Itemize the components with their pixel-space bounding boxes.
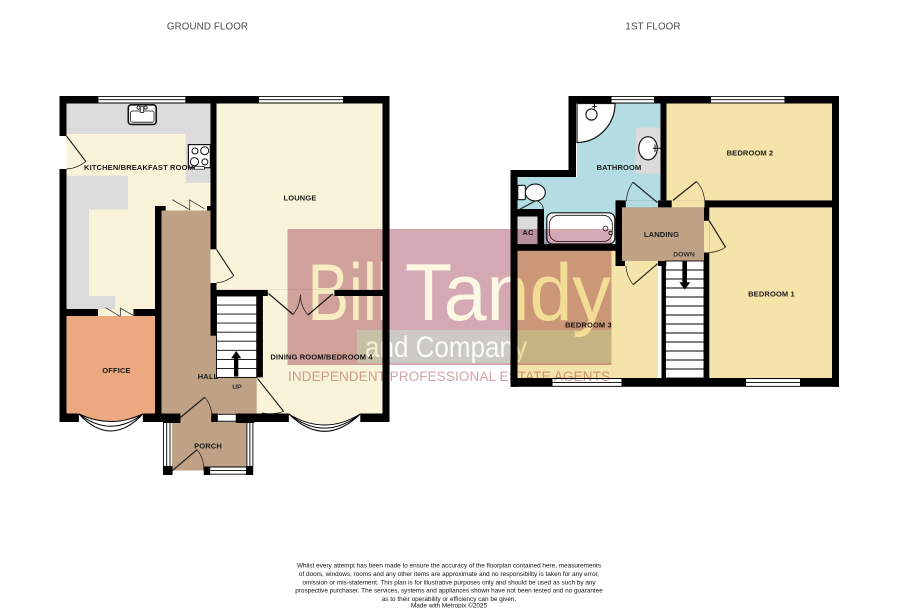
svg-text:BEDROOM 2: BEDROOM 2: [727, 149, 774, 158]
svg-text:prospective purchaser. The ser: prospective purchaser. The services, sys…: [295, 588, 603, 595]
svg-text:BATHROOM: BATHROOM: [597, 163, 642, 172]
svg-text:LOUNGE: LOUNGE: [284, 193, 317, 202]
svg-text:Made with Metropix ©2025: Made with Metropix ©2025: [411, 601, 488, 608]
svg-text:omission or mis-statement. Thi: omission or mis-statement. This plan is …: [302, 579, 596, 586]
svg-text:UP: UP: [232, 384, 242, 391]
svg-text:of doors, windows, rooms and a: of doors, windows, rooms and any other i…: [299, 571, 599, 578]
svg-text:1ST FLOOR: 1ST FLOOR: [625, 22, 680, 33]
svg-text:Whilst every attempt has been: Whilst every attempt has been made to en…: [297, 563, 601, 570]
svg-text:PORCH: PORCH: [194, 442, 222, 451]
svg-text:HALL: HALL: [198, 372, 219, 381]
svg-text:GROUND FLOOR: GROUND FLOOR: [167, 22, 248, 33]
svg-text:and Company: and Company: [365, 331, 527, 364]
svg-text:LANDING: LANDING: [644, 230, 679, 239]
svg-text:DOWN: DOWN: [673, 251, 695, 258]
svg-text:BEDROOM 1: BEDROOM 1: [748, 290, 795, 299]
svg-text:Tandy: Tandy: [405, 248, 611, 338]
svg-text:OFFICE: OFFICE: [102, 366, 130, 375]
svg-text:INDEPENDENT PROFESSIONAL ESTAT: INDEPENDENT PROFESSIONAL ESTATE AGENTS: [288, 369, 610, 384]
svg-text:Bill: Bill: [308, 248, 391, 338]
svg-text:KITCHEN/BREAKFAST ROOM: KITCHEN/BREAKFAST ROOM: [84, 163, 194, 172]
